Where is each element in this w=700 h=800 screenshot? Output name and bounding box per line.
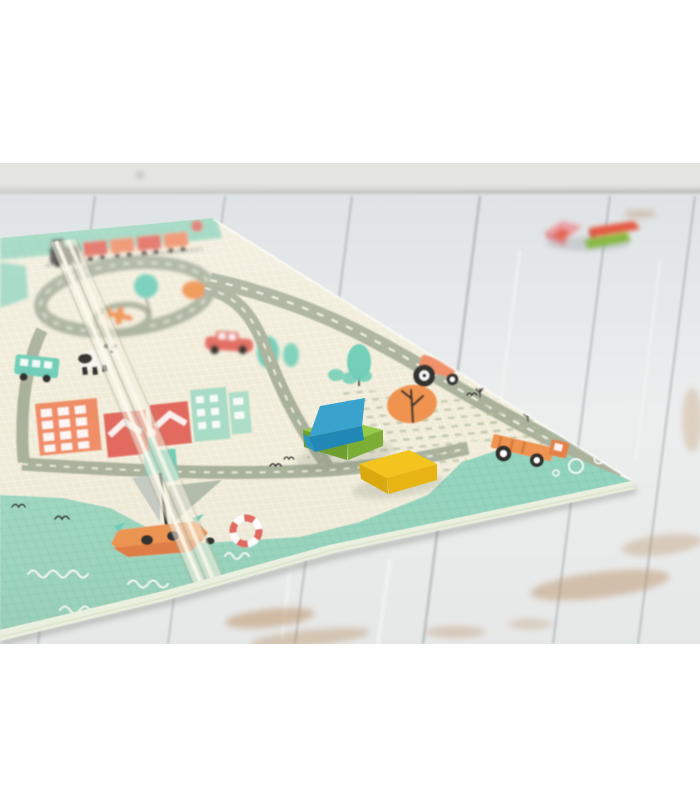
bottom-white-margin — [0, 644, 700, 800]
wall-smudge — [136, 171, 144, 179]
top-white-margin — [0, 0, 700, 163]
wall — [0, 163, 700, 198]
product-photo — [0, 163, 700, 644]
